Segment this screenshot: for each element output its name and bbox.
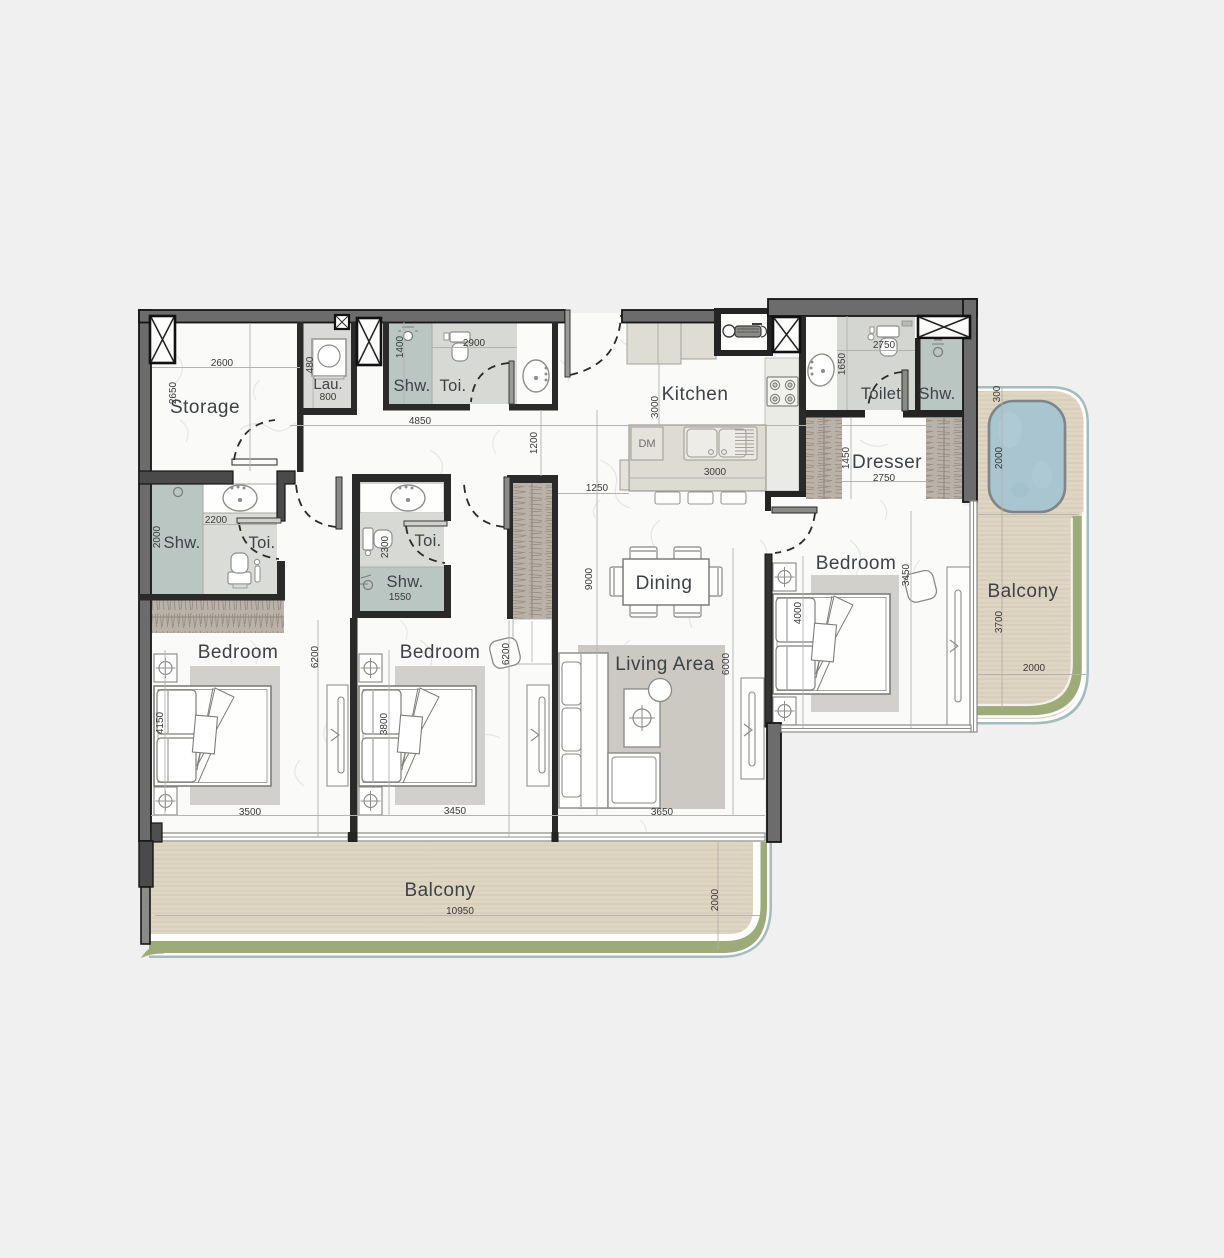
svg-text:2200: 2200 [205,515,228,526]
svg-text:3650: 3650 [651,807,674,818]
svg-text:2750: 2750 [873,473,896,484]
svg-text:Bedroom: Bedroom [400,642,481,663]
svg-text:1250: 1250 [586,483,609,494]
svg-text:3450: 3450 [444,806,467,817]
svg-text:Balcony: Balcony [404,880,475,901]
svg-text:3000: 3000 [704,467,727,478]
svg-text:Toi.: Toi. [415,532,442,550]
svg-text:3000: 3000 [650,395,661,418]
svg-text:3700: 3700 [994,610,1005,633]
svg-text:Lau.: Lau. [313,376,342,393]
svg-text:9000: 9000 [584,567,595,590]
svg-text:2000: 2000 [1023,663,1046,674]
svg-text:3500: 3500 [239,807,262,818]
svg-text:Dresser: Dresser [852,452,922,473]
svg-text:1200: 1200 [529,431,540,454]
svg-text:Shw.: Shw. [394,377,431,395]
svg-text:2900: 2900 [463,338,486,349]
svg-text:Dining: Dining [636,573,693,594]
svg-text:2600: 2600 [211,358,234,369]
svg-text:1650: 1650 [837,352,848,375]
svg-text:Toi.: Toi. [249,534,276,552]
svg-text:4000: 4000 [793,601,804,624]
svg-text:10950: 10950 [446,906,474,917]
svg-text:2000: 2000 [994,446,1005,469]
svg-text:Balcony: Balcony [987,581,1058,602]
svg-text:2300: 2300 [380,535,391,558]
svg-text:1550: 1550 [389,592,412,603]
svg-text:1450: 1450 [841,446,852,469]
svg-text:Bedroom: Bedroom [198,642,279,663]
svg-text:3800: 3800 [379,712,390,735]
svg-text:DM: DM [638,438,655,450]
svg-text:1400: 1400 [395,335,406,358]
svg-text:4150: 4150 [155,711,166,734]
svg-text:Toilet: Toilet [861,385,901,403]
svg-text:Kitchen: Kitchen [662,384,729,405]
svg-text:Bedroom: Bedroom [816,553,897,574]
svg-text:800: 800 [320,392,337,403]
svg-text:480: 480 [305,356,316,373]
svg-text:300: 300 [992,385,1003,402]
svg-text:3450: 3450 [901,563,912,586]
svg-text:2000: 2000 [710,888,721,911]
svg-text:2000: 2000 [152,525,163,548]
svg-text:Shw.: Shw. [919,385,956,403]
svg-text:6200: 6200 [501,642,512,665]
svg-text:4850: 4850 [409,416,432,427]
svg-text:Shw.: Shw. [164,534,201,552]
svg-text:Storage: Storage [170,397,240,418]
svg-text:6000: 6000 [721,652,732,675]
svg-text:Shw.: Shw. [387,573,424,591]
svg-text:2750: 2750 [873,340,896,351]
svg-text:Toi.: Toi. [440,377,467,395]
svg-text:6200: 6200 [310,645,321,668]
svg-text:Living Area: Living Area [615,654,715,675]
